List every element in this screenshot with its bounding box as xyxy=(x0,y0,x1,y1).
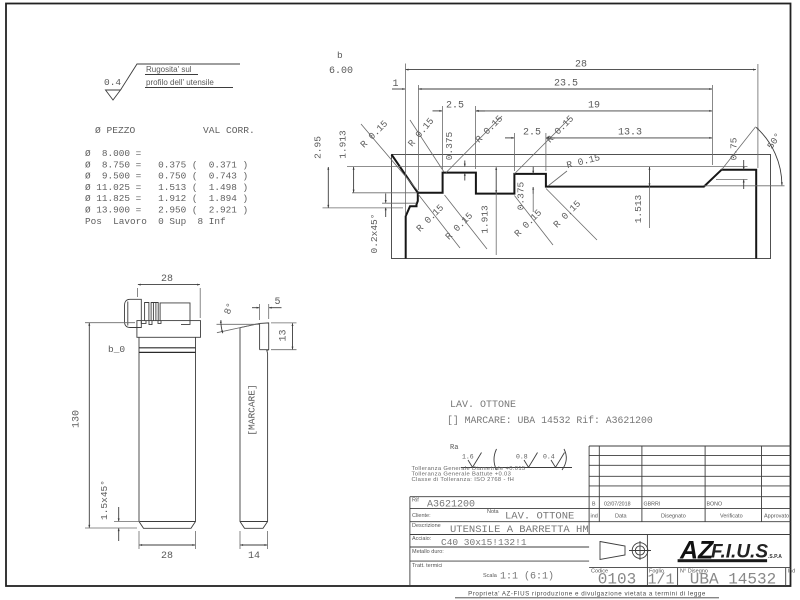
svg-text:Tratt. termici: Tratt. termici xyxy=(412,563,442,569)
svg-text:C40 30x15!132!1: C40 30x15!132!1 xyxy=(441,537,527,548)
svg-text:Nota: Nota xyxy=(487,509,500,515)
svg-text:F.I.U.S: F.I.U.S xyxy=(711,542,768,563)
svg-text:Classe di Tolleranza: ISO 2768: Classe di Tolleranza: ISO 2768 - fH xyxy=(412,477,515,483)
svg-text:b_0: b_0 xyxy=(108,344,125,355)
svg-text:Disegnato: Disegnato xyxy=(661,514,686,520)
svg-text:BONO: BONO xyxy=(707,502,723,508)
svg-text:.S.P.A: .S.P.A xyxy=(768,554,782,560)
svg-text:28: 28 xyxy=(161,551,173,562)
svg-text:0.375: 0.375 xyxy=(516,181,527,210)
svg-text:Ø 11.025 = 1.513 ( 1.498 ): Ø 11.025 = 1.513 ( 1.498 ) xyxy=(85,182,248,193)
svg-text:14: 14 xyxy=(248,551,260,562)
svg-text:AZ: AZ xyxy=(679,537,715,565)
svg-text:ind: ind xyxy=(591,514,598,520)
svg-text:Ø 13.900 = 2.950 ( 2.921 ): Ø 13.900 = 2.950 ( 2.921 ) xyxy=(85,205,248,216)
svg-text:A3621200: A3621200 xyxy=(427,500,475,511)
svg-text:Ø 8.750 = 0.375 ( 0.371 ): Ø 8.750 = 0.375 ( 0.371 ) xyxy=(85,159,248,170)
svg-text:Rugosita' sul: Rugosita' sul xyxy=(146,65,192,74)
svg-text:B: B xyxy=(592,502,596,508)
svg-text:Scala: Scala xyxy=(483,573,498,579)
svg-text:23.5: 23.5 xyxy=(554,79,578,90)
svg-text:Acciaio:: Acciaio: xyxy=(412,536,432,542)
svg-text:1:1 (6:1): 1:1 (6:1) xyxy=(500,571,554,583)
svg-text:130: 130 xyxy=(72,410,83,428)
svg-text:Ø PEZZO: Ø PEZZO xyxy=(95,125,136,136)
svg-text:5: 5 xyxy=(274,297,280,308)
svg-text:13.3: 13.3 xyxy=(618,128,642,139)
svg-text:Metallo duro:: Metallo duro: xyxy=(412,549,444,555)
svg-text:19: 19 xyxy=(588,101,600,112)
svg-text:0.75: 0.75 xyxy=(729,137,740,160)
svg-text:0.375: 0.375 xyxy=(444,131,455,160)
svg-text:1.513: 1.513 xyxy=(633,194,644,223)
svg-text:VAL CORR.: VAL CORR. xyxy=(203,125,255,136)
svg-text:Ra: Ra xyxy=(450,444,458,452)
svg-text:2.5: 2.5 xyxy=(523,128,541,139)
svg-text:1.5x45°: 1.5x45° xyxy=(99,480,110,520)
svg-text:Ind: Ind xyxy=(788,569,796,575)
svg-text:[] MARCARE: UBA 14532 Rif: A36: [] MARCARE: UBA 14532 Rif: A3621200 xyxy=(447,415,653,426)
svg-text:6.00: 6.00 xyxy=(329,66,353,77)
svg-text:UBA 14532: UBA 14532 xyxy=(690,571,776,589)
svg-text:Ø 11.825 = 1.912 ( 1.894 ): Ø 11.825 = 1.912 ( 1.894 ) xyxy=(85,193,248,204)
svg-text:LAV. OTTONE: LAV. OTTONE xyxy=(505,511,574,523)
svg-text:Rif: Rif xyxy=(412,498,419,504)
svg-text:0.8: 0.8 xyxy=(516,454,528,461)
svg-text:Descrizione: Descrizione xyxy=(412,523,441,529)
svg-text:Ø 8.000 =: Ø 8.000 = xyxy=(85,148,142,159)
svg-text:13: 13 xyxy=(279,329,290,341)
svg-text:28: 28 xyxy=(161,274,173,285)
svg-text:Cliente:: Cliente: xyxy=(412,513,431,519)
svg-text:0.2x45°: 0.2x45° xyxy=(369,214,380,254)
svg-text:profilo dell' utensile: profilo dell' utensile xyxy=(146,78,214,87)
svg-text:Data: Data xyxy=(615,514,628,520)
svg-text:1.913: 1.913 xyxy=(480,205,491,234)
svg-text:0103: 0103 xyxy=(598,571,636,589)
svg-text:0.4: 0.4 xyxy=(543,454,555,461)
svg-text:0.4: 0.4 xyxy=(104,77,121,88)
svg-text:1.913: 1.913 xyxy=(338,130,349,159)
svg-text:b: b xyxy=(337,50,343,61)
svg-text:28: 28 xyxy=(575,60,587,71)
svg-text:Approvato: Approvato xyxy=(764,514,789,520)
svg-text:2.95: 2.95 xyxy=(313,136,324,159)
svg-text:UTENSILE A BARRETTA HM: UTENSILE A BARRETTA HM xyxy=(450,524,589,536)
svg-text:Proprieta' AZ-FIUS riproduzion: Proprieta' AZ-FIUS riproduzione e divulg… xyxy=(468,591,706,598)
svg-text:GBRRI: GBRRI xyxy=(644,502,661,508)
svg-text:LAV. OTTONE: LAV. OTTONE xyxy=(450,400,516,411)
svg-text:[MARCARE]: [MARCARE] xyxy=(247,384,258,435)
svg-text:1.6: 1.6 xyxy=(462,454,474,461)
svg-text:Pos Lavoro 0 Sup 8 Inf: Pos Lavoro 0 Sup 8 Inf xyxy=(85,216,226,227)
svg-text:02/07/2018: 02/07/2018 xyxy=(604,502,631,508)
svg-text:1: 1 xyxy=(392,79,398,90)
svg-text:Verificato: Verificato xyxy=(720,514,743,520)
svg-text:2.5: 2.5 xyxy=(446,101,464,112)
svg-text:1/1: 1/1 xyxy=(647,572,674,589)
svg-text:Ø 9.500 = 0.750 ( 0.743 ): Ø 9.500 = 0.750 ( 0.743 ) xyxy=(85,171,248,182)
